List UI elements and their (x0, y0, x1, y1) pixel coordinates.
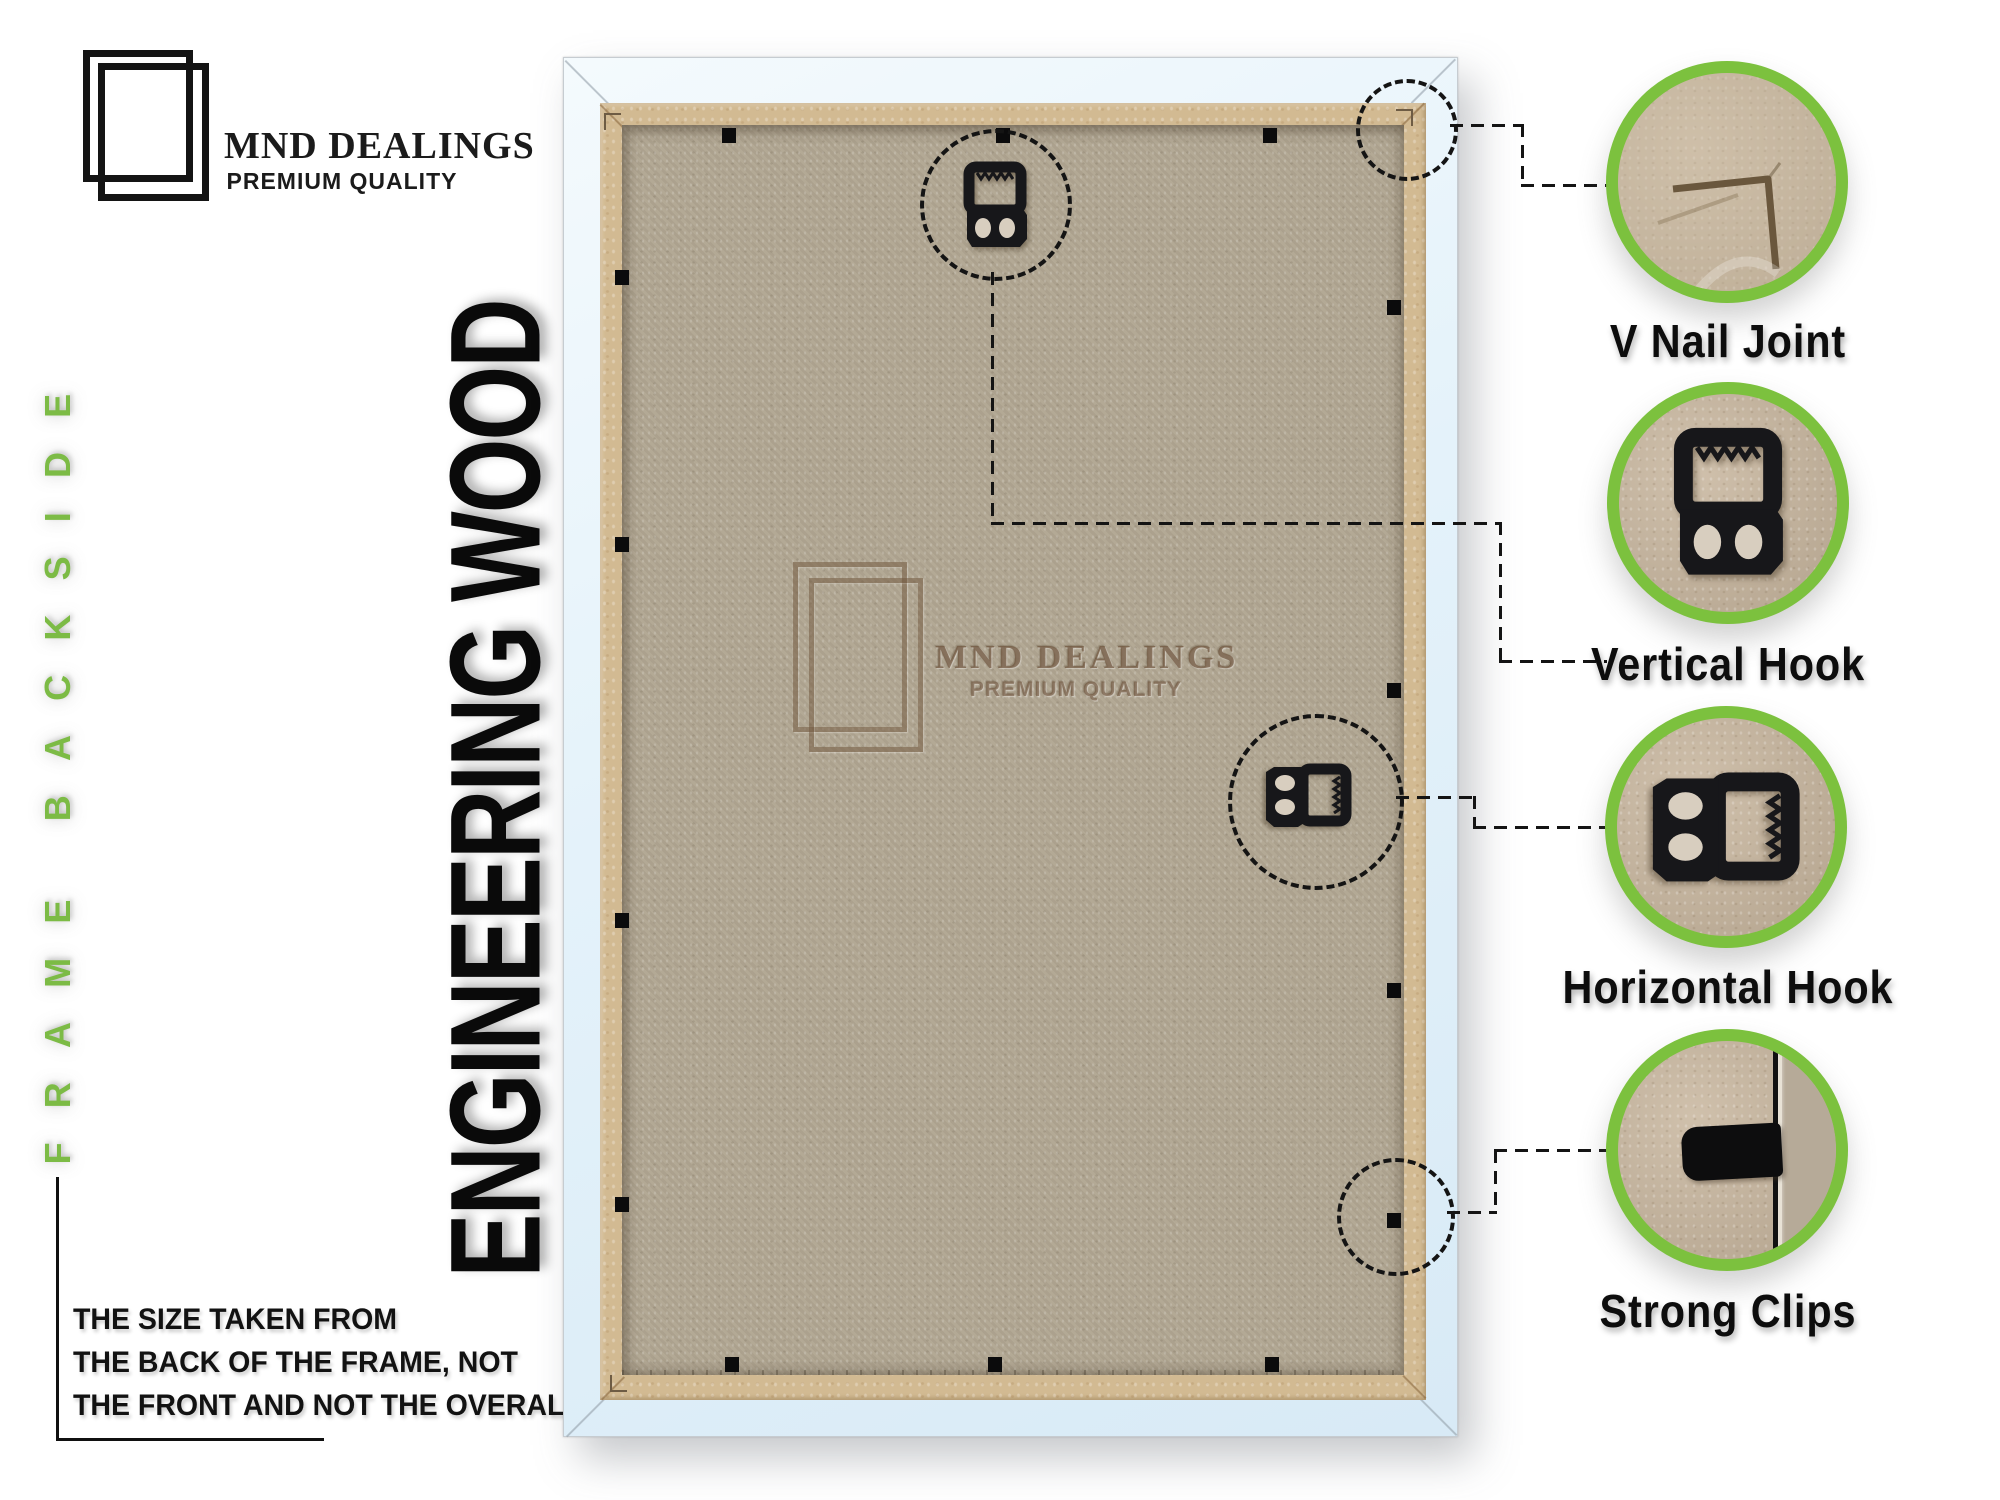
strong-clip-photo (1681, 1122, 1784, 1181)
horizontal-hook-photo (1650, 772, 1801, 882)
connector-line (1521, 124, 1524, 186)
frame-outline-icon (98, 63, 209, 201)
callout-label-vertical-hook: Vertical Hook (1591, 637, 1865, 691)
v-nail-joint-photo (1618, 73, 1836, 291)
connector-line (1499, 522, 1502, 662)
connector-line (991, 522, 1502, 525)
corner-joint-mark (610, 1375, 627, 1392)
horizontal-hook-highlight-circle (1228, 714, 1404, 890)
connector-line (1521, 184, 1613, 187)
horizontal-hook-callout (1605, 706, 1847, 948)
watermark-brand-tagline: PREMIUM QUALITY (935, 678, 1217, 702)
retaining-clip (1263, 128, 1277, 143)
connector-line (1473, 796, 1476, 829)
strong-clip-highlight-circle (1337, 1158, 1455, 1276)
connector-line (1494, 1150, 1497, 1214)
callout-label-v-nail-joint: V Nail Joint (1610, 314, 1846, 368)
callout-label-strong-clips: Strong Clips (1600, 1284, 1857, 1338)
brand-logo (83, 50, 213, 198)
connector-line (1450, 124, 1524, 127)
retaining-clip (615, 913, 629, 928)
size-note-line-2: THE BACK OF THE FRAME, NOT (73, 1346, 518, 1380)
connector-line (1473, 826, 1606, 829)
note-bracket-line (56, 1177, 59, 1441)
vertical-hook-highlight-circle (920, 129, 1072, 281)
size-note-line-1: THE SIZE TAKEN FROM (73, 1303, 397, 1337)
note-bracket-line (56, 1438, 324, 1441)
retaining-clip (615, 270, 629, 285)
headline-engineering-wood: ENGINEERING WOOD (423, 300, 570, 1277)
brand-name: MND DEALINGS (224, 124, 460, 168)
corner-joint-mark (604, 113, 621, 130)
retaining-clip (615, 1197, 629, 1212)
corner-joint-highlight-circle (1356, 79, 1458, 181)
retaining-clip (1265, 1357, 1279, 1372)
connector-line (991, 272, 994, 524)
frame-edge (1781, 1041, 1836, 1259)
vertical-hook-photo (1673, 427, 1783, 578)
callout-label-horizontal-hook: Horizontal Hook (1563, 960, 1894, 1014)
connector-line (1396, 796, 1476, 799)
watermark-frame-outline-icon (809, 578, 923, 752)
retaining-clip (725, 1357, 739, 1372)
retaining-clip (722, 128, 736, 143)
retaining-clip (1387, 683, 1401, 698)
retaining-clip (615, 537, 629, 552)
retaining-clip (1387, 300, 1401, 315)
watermark-brand-name: MND DEALINGS (935, 639, 1238, 677)
connector-line (1494, 1149, 1608, 1152)
retaining-clip (1387, 983, 1401, 998)
vertical-hook-callout (1607, 382, 1849, 624)
brand-tagline: PREMIUM QUALITY (224, 168, 460, 195)
strong-clips-callout (1606, 1029, 1848, 1271)
frame-backside-label: FRAME BACKSIDE (37, 360, 79, 1165)
v-nail-joint-callout (1606, 61, 1848, 303)
retaining-clip (988, 1357, 1002, 1372)
